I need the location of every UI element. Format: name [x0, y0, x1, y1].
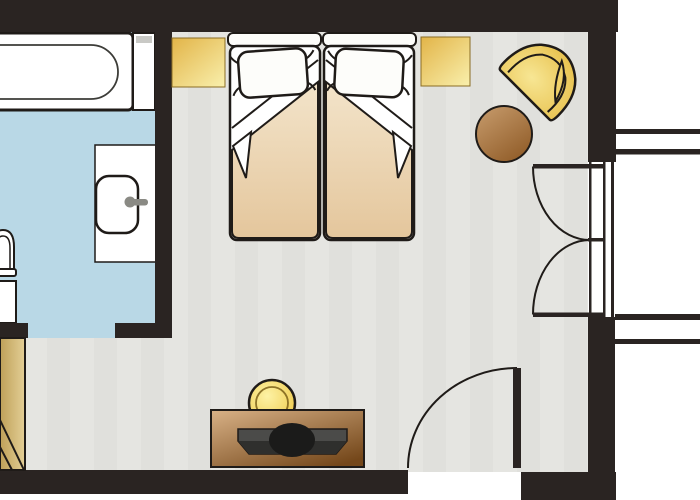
door-frame-line — [611, 162, 614, 317]
toilet-seat-hinge — [0, 269, 16, 276]
wall-right-upper — [588, 32, 616, 162]
bathtub — [0, 33, 133, 110]
balcony-wall-line — [615, 149, 700, 155]
wall-bathroom-south-left — [0, 323, 28, 338]
entry-door-leaf — [513, 368, 521, 468]
wall-top — [0, 0, 618, 32]
pillow-right — [326, 48, 412, 98]
faucet-knob — [125, 197, 136, 208]
wall-bathroom-south-right — [115, 323, 172, 338]
balcony-wall-line — [615, 339, 700, 344]
floor-plan — [0, 0, 700, 500]
toilet-tank — [0, 281, 16, 323]
pillow-left-body — [237, 48, 308, 99]
wardrobe — [0, 338, 25, 470]
washbasin-counter — [95, 145, 157, 262]
balcony-wall-line — [615, 129, 700, 134]
nightstand-right — [421, 37, 470, 86]
toilet — [0, 230, 16, 323]
single-bed-left — [228, 33, 321, 240]
french-door-meeting-stile — [588, 238, 605, 242]
pillow-left — [229, 47, 316, 99]
french-door-top-leaf — [533, 164, 605, 169]
headboard-right — [323, 33, 416, 46]
round-table — [476, 106, 532, 162]
french-door-bottom-leaf — [533, 313, 605, 318]
balcony-walls — [615, 129, 700, 344]
wall-bottom — [0, 470, 408, 494]
single-bed-right — [323, 33, 416, 240]
pillow-right-body — [334, 48, 404, 97]
tub-ledge-top — [133, 33, 155, 110]
tv-swivel — [269, 423, 315, 457]
wall-bathroom-divider — [155, 32, 172, 338]
dresser — [211, 410, 364, 467]
tub-ledge — [133, 33, 155, 110]
wardrobe-body — [0, 338, 25, 470]
floor-plan-page — [0, 0, 700, 500]
nightstand-left — [172, 38, 225, 87]
headboard-left — [228, 33, 321, 46]
wall-bottom-right — [521, 472, 616, 500]
balcony-wall-line — [615, 314, 700, 320]
tub-ledge-cap — [136, 36, 152, 43]
